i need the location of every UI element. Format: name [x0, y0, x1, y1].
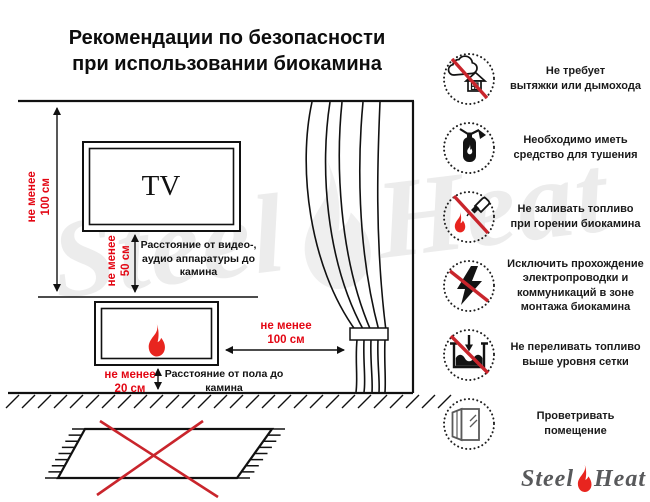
- no-electrical-wiring-icon: [441, 258, 497, 314]
- tv-distance-label: не менее 50 см: [106, 211, 134, 311]
- floor-distance-note: Расстояние от пола до камина: [160, 368, 288, 395]
- logo-heat-text: Heat: [594, 466, 646, 493]
- recommendation-text: Не переливать топливо выше уровня сетки: [503, 340, 648, 369]
- page-title: Рекомендации по безопасности при использ…: [12, 25, 442, 78]
- no-chimney-icon: [441, 51, 497, 107]
- curtain: [306, 102, 388, 392]
- logo-flame-icon: [573, 464, 595, 494]
- curtain-distance-label: не менее 100 см: [236, 319, 336, 348]
- recommendation-item: Не заливать топливо при горении биокамин…: [441, 188, 648, 245]
- recommendation-item: Не переливать топливо выше уровня сетки: [441, 326, 648, 383]
- ventilate-room-icon: [441, 396, 497, 452]
- fireplace-box: [95, 302, 218, 365]
- recommendation-item: Исключить прохождение электропроводки и …: [441, 257, 648, 314]
- recommendation-item: Не требует вытяжки или дымохода: [441, 50, 648, 107]
- recommendation-item: Необходимо иметь средство для тушения: [441, 119, 648, 176]
- steelheat-logo: Steel Heat: [521, 464, 646, 494]
- recommendations-panel: Не требует вытяжки или дымохода Необходи…: [441, 50, 648, 452]
- av-distance-note: Расстояние от видео-, аудио аппаратуры д…: [136, 239, 261, 280]
- ceiling-distance-label: не менее 100 см: [26, 147, 54, 247]
- recommendation-text: Не заливать топливо при горении биокамин…: [503, 202, 648, 231]
- curtain-tieback: [350, 328, 388, 340]
- rug: [45, 421, 285, 497]
- recommendation-text: Не требует вытяжки или дымохода: [503, 64, 648, 93]
- logo-steel-text: Steel: [521, 466, 574, 493]
- infographic-page: Steel Heat: [0, 0, 650, 502]
- recommendation-text: Исключить прохождение электропроводки и …: [503, 257, 648, 314]
- title-line-1: Рекомендации по безопасности: [12, 25, 442, 51]
- floor-hatching: [6, 395, 451, 408]
- recommendation-text: Необходимо иметь средство для тушения: [503, 133, 648, 162]
- recommendation-text: Проветривать помещение: [503, 409, 648, 438]
- fire-extinguisher-icon: [441, 120, 497, 176]
- tv-label: TV: [121, 170, 201, 203]
- no-overfilling-icon: [441, 327, 497, 383]
- recommendation-item: Проветривать помещение: [441, 395, 648, 452]
- title-line-2: при использовании биокамина: [12, 51, 442, 77]
- no-refueling-while-burning-icon: [441, 189, 497, 245]
